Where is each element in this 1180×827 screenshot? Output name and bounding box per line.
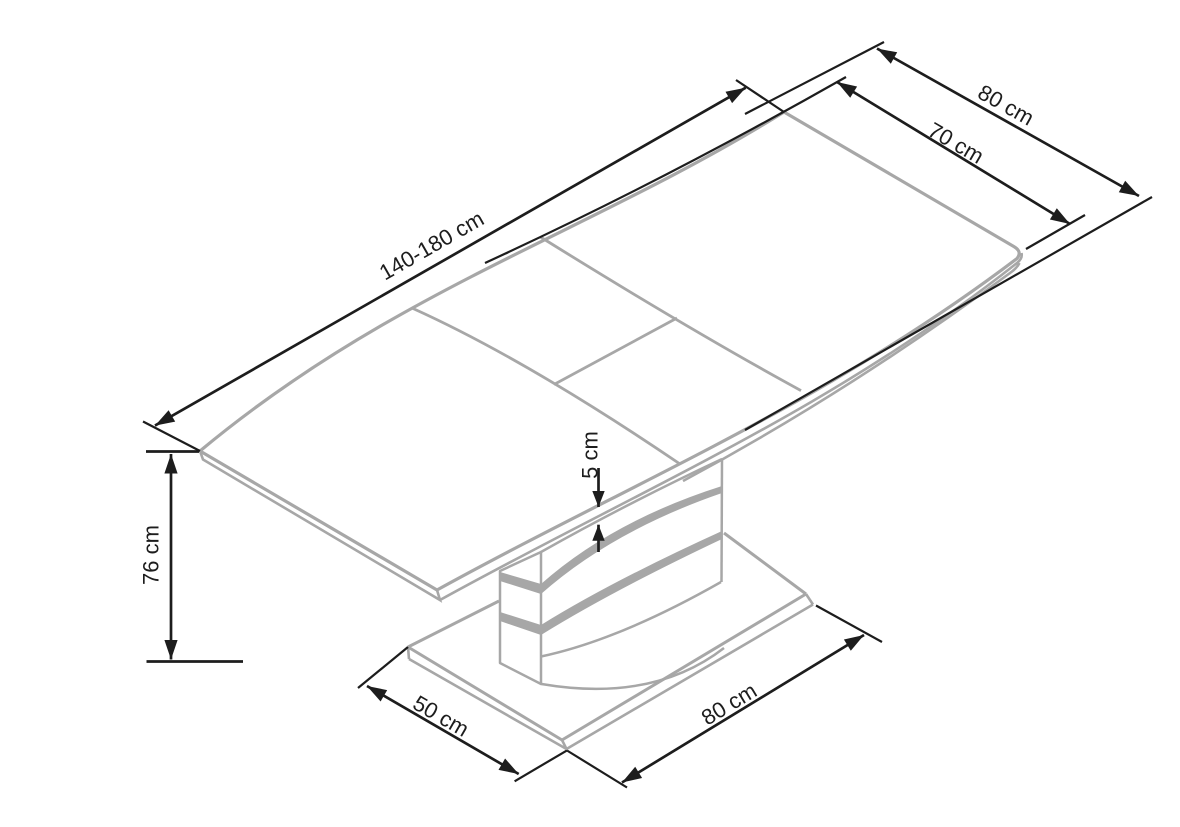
svg-text:76 cm: 76 cm bbox=[139, 525, 164, 585]
svg-text:5 cm: 5 cm bbox=[578, 431, 603, 479]
